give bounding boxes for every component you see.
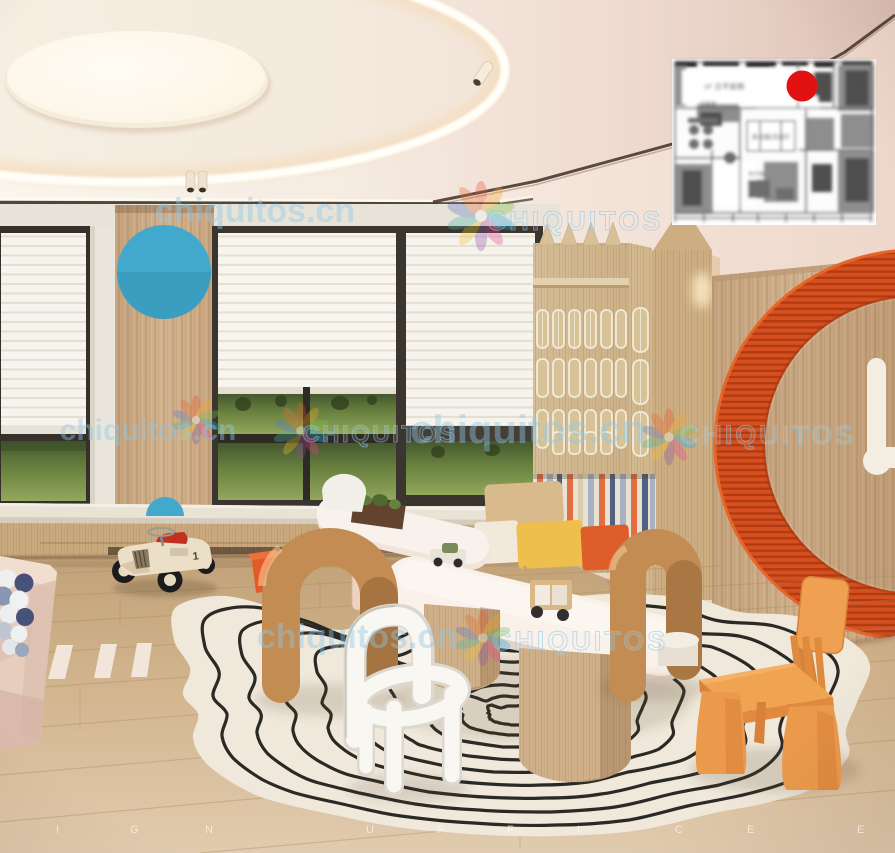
svg-text:F: F [437, 824, 444, 836]
svg-text:chiquitos.cn: chiquitos.cn [410, 408, 646, 452]
svg-text:CHIQUITOS: CHIQUITOS [487, 206, 664, 236]
svg-text:N: N [205, 824, 213, 836]
svg-text:E: E [857, 824, 864, 836]
svg-text:chiquitos.cn: chiquitos.cn [155, 192, 355, 230]
svg-text:chiquitos.cn: chiquitos.cn [257, 618, 457, 656]
svg-text:I: I [577, 824, 580, 836]
svg-text:E: E [747, 824, 754, 836]
svg-text:I: I [56, 824, 59, 836]
svg-text:chiquitos.cn: chiquitos.cn [60, 414, 237, 447]
svg-text:CHIQUITOS: CHIQUITOS [680, 420, 857, 450]
svg-text:F: F [507, 824, 514, 836]
svg-text:CHIQUITOS: CHIQUITOS [492, 626, 669, 656]
svg-text:C: C [675, 824, 683, 836]
svg-text:U: U [366, 824, 374, 836]
svg-text:G: G [130, 824, 139, 836]
